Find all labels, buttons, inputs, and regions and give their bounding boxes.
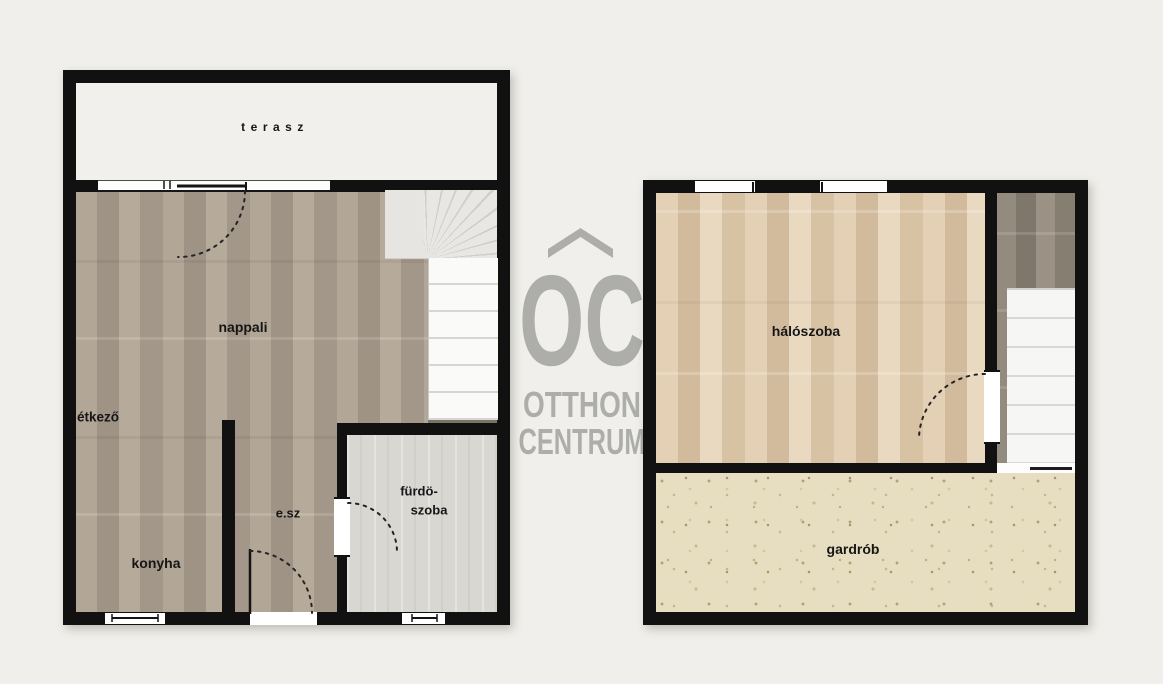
stair-landing-edge (1030, 467, 1072, 470)
room-label-haloszoba: hálószoba (772, 323, 840, 339)
room-label-furdoszoba-line2: szoba (411, 503, 448, 518)
otthon-centrum-watermark: OC OTTHON CENTRUM (516, 224, 648, 456)
stairs-winder (385, 190, 497, 259)
room-label-etkezo: étkező (77, 410, 119, 425)
room-label-furdoszoba-line1: fürdö- (400, 484, 438, 499)
watermark-brand-line2: CENTRUM (519, 421, 646, 456)
room-label-elosz: e.sz (276, 506, 301, 521)
room-label-konyha: konyha (131, 555, 180, 571)
room-label-terasz: terasz (241, 120, 309, 134)
watermark-logo-text: OC (519, 249, 645, 393)
entry-door-opening (250, 612, 317, 625)
bedroom-door-leaf (984, 370, 1000, 444)
bathroom-door-leaf (334, 497, 350, 557)
watermark-brand-line1: OTTHON (523, 384, 641, 425)
floor-plan-page: OC OTTHON CENTRUM (0, 0, 1163, 684)
floor-plan-upper (643, 180, 1088, 625)
room-label-gardrob: gardrób (827, 541, 880, 557)
room-label-nappali: nappali (218, 319, 267, 335)
terrace-glass-wall (98, 180, 330, 192)
wall-kitchen-hall (222, 420, 235, 612)
floor-plan-ground (63, 70, 510, 625)
kitchen-window (105, 613, 165, 624)
bedroom-window-1 (695, 181, 755, 192)
stairs-run (428, 258, 498, 420)
bedroom-window-2 (820, 181, 887, 192)
bathroom-window (402, 613, 445, 624)
wall-bathroom-top (337, 423, 497, 435)
room-furdoszoba-floor (347, 435, 497, 612)
stairs-run-upper (1007, 288, 1075, 464)
